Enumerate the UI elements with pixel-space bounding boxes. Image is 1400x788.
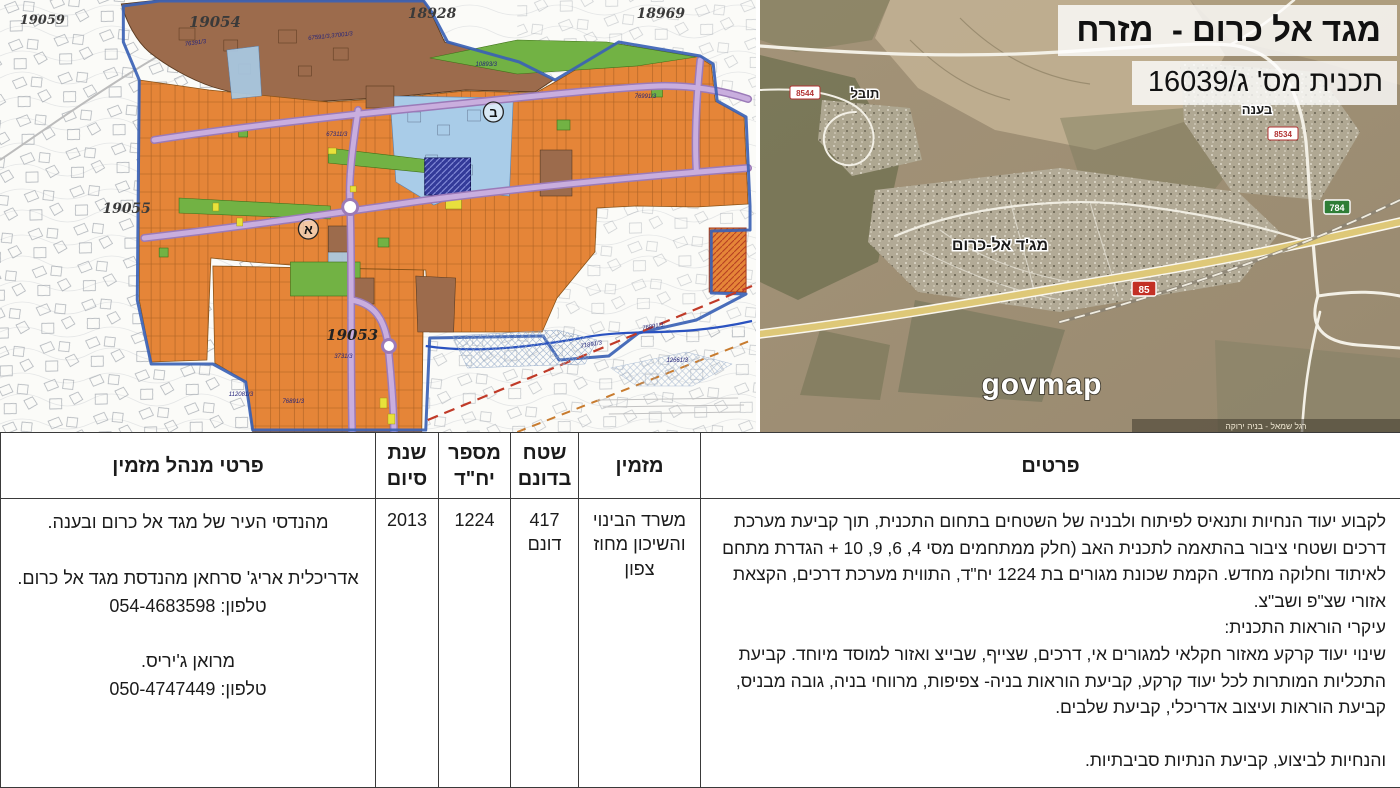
svg-text:76891/3: 76891/3: [283, 399, 305, 405]
road-shield-8544: 8544: [790, 86, 820, 99]
road-shield-8534: 8534: [1268, 127, 1298, 140]
header-manager: פרטי מנהל מזמין: [1, 433, 376, 499]
svg-text:85: 85: [1138, 285, 1150, 296]
svg-text:3731/3: 3731/3: [334, 354, 353, 360]
zone-letter-alef: א: [304, 222, 313, 237]
svg-text:12661/3: 12661/3: [666, 358, 688, 364]
maps-row: 19059 19054 18928 18969 19055 19053 א ב …: [0, 0, 1400, 432]
satellite-map: תובל בענה מג'ד אל-כרום 8544 8534 85: [760, 0, 1400, 432]
svg-text:784: 784: [1329, 203, 1344, 213]
road-shield-85: 85: [1132, 281, 1156, 296]
town-label-tuval: תובל: [851, 86, 880, 101]
cell-units: 1224: [439, 499, 511, 788]
cell-details: לקבוע יעוד הנחיות ותנאיס לפיתוח ולבניה ש…: [701, 499, 1400, 788]
slide: 19059 19054 18928 18969 19055 19053 א ב …: [0, 0, 1400, 788]
header-year: שנת סיום: [376, 433, 439, 499]
svg-text:76991/3: 76991/3: [635, 94, 657, 100]
block-number: 19055: [102, 201, 150, 217]
govmap-watermark: govmap: [981, 368, 1102, 401]
cell-year: 2013: [376, 499, 439, 788]
block-number: 18928: [408, 6, 457, 22]
svg-text:8544: 8544: [796, 89, 814, 98]
header-details: פרטים: [701, 433, 1400, 499]
plan-number: תכנית מס' ג/16039: [1132, 61, 1397, 105]
header-area: שטח בדונם: [511, 433, 579, 499]
town-label-majd-al-krum: מג'ד אל-כרום: [952, 236, 1048, 254]
svg-text:67311/3: 67311/3: [326, 132, 348, 138]
project-table: פרטים מזמין שטח בדונם מספר יח"ד שנת סיום…: [0, 432, 1400, 788]
block-number: 18969: [637, 6, 686, 22]
map-caption: רגל שמאל - בניה ירוקה: [1225, 421, 1306, 431]
cell-client: משרד הבינוי והשיכון מחוז צפון: [579, 499, 701, 788]
table-data-row: לקבוע יעוד הנחיות ותנאיס לפיתוח ולבניה ש…: [1, 499, 1400, 788]
zone-letter-bet: ב: [489, 105, 497, 120]
header-units: מספר יח"ד: [439, 433, 511, 499]
zoning-plan-map: 19059 19054 18928 18969 19055 19053 א ב …: [0, 0, 756, 432]
map-caption-strip: רגל שמאל - בניה ירוקה: [1132, 419, 1400, 432]
header-client: מזמין: [579, 433, 701, 499]
block-number: 19054: [189, 13, 241, 31]
table-header-row: פרטים מזמין שטח בדונם מספר יח"ד שנת סיום…: [1, 433, 1400, 499]
svg-text:112081/3: 112081/3: [229, 392, 254, 398]
svg-text:8534: 8534: [1274, 130, 1292, 139]
road-shield-784: 784: [1324, 200, 1350, 214]
cell-manager: מהנדסי העיר של מגד אל כרום ובענה. אדריכל…: [1, 499, 376, 788]
cell-area: 417 דונם: [511, 499, 579, 788]
plan-title: מגד אל כרום - מזרח: [1058, 5, 1397, 56]
svg-text:10893/3: 10893/3: [475, 62, 497, 68]
project-table-wrap: פרטים מזמין שטח בדונם מספר יח"ד שנת סיום…: [0, 432, 1400, 788]
block-number: 19059: [20, 13, 65, 28]
block-number: 19053: [326, 326, 378, 344]
zoning-map-svg: 19059 19054 18928 18969 19055 19053 א ב …: [0, 0, 756, 432]
